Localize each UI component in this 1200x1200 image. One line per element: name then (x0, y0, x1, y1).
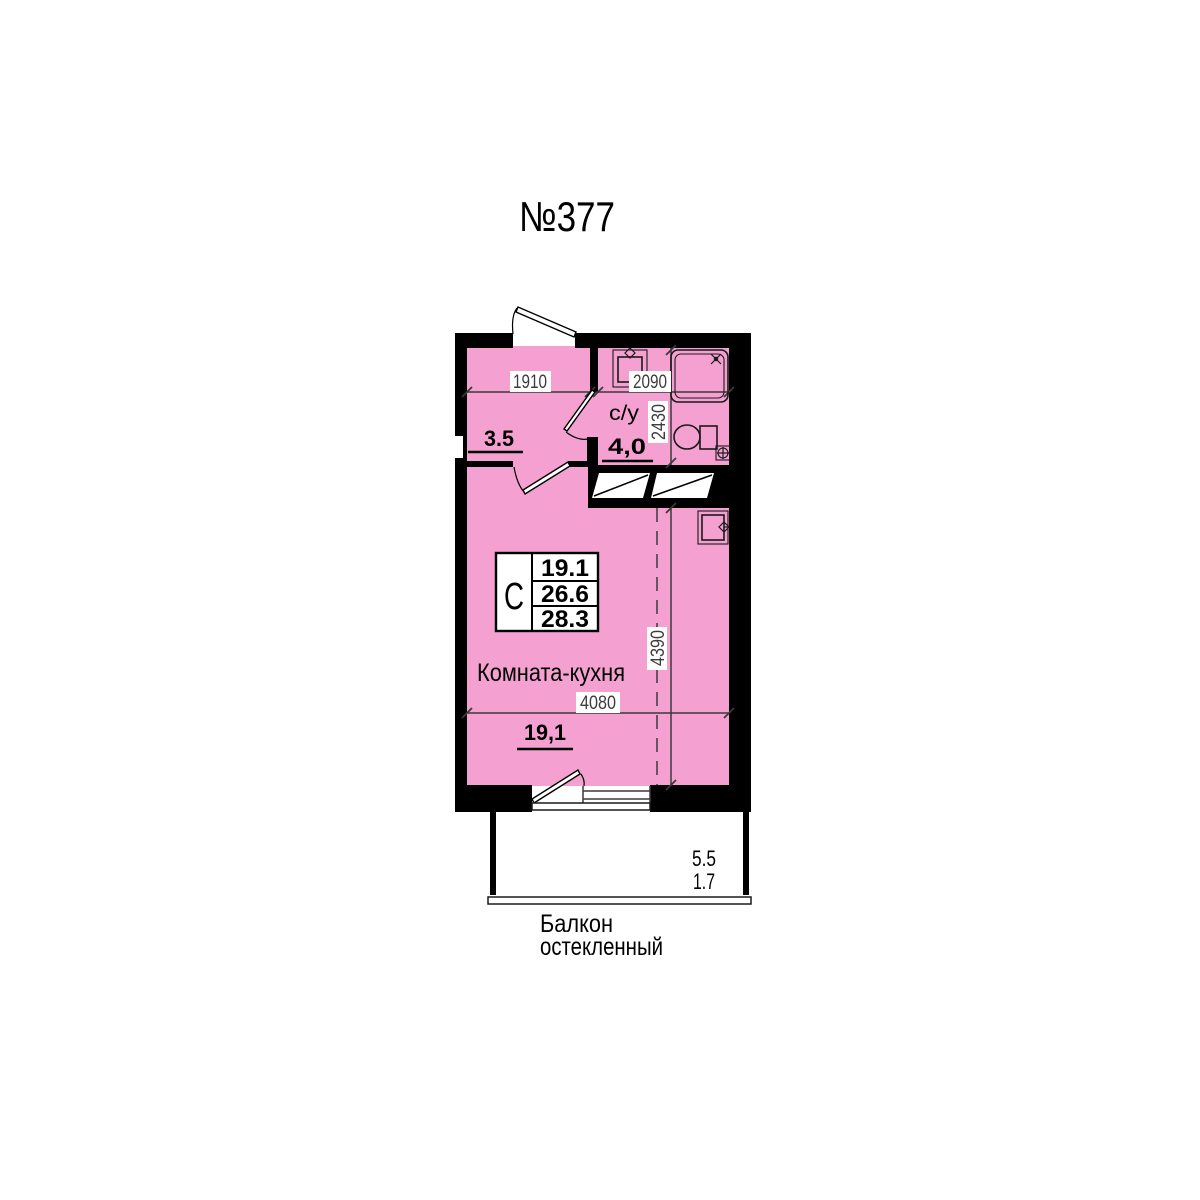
wall-right (729, 348, 751, 812)
svg-text:3.5: 3.5 (484, 426, 514, 451)
svg-text:Комната-кухня: Комната-кухня (477, 659, 625, 687)
wall-top-left (455, 333, 513, 348)
balcony-glazing (488, 897, 751, 904)
balcony-name-label: Балкон остекленный (540, 910, 663, 961)
page-title: №377 (519, 193, 615, 240)
vent-shaft-icon (651, 473, 714, 498)
entrance-door (513, 307, 577, 337)
wall-left (455, 348, 467, 812)
svg-text:19,1: 19,1 (524, 720, 566, 745)
bathroom-area-label: 4,0 (602, 434, 653, 461)
dim-label-room-width: 4080 (576, 692, 620, 714)
dim-label-hallway-width: 1910 (510, 371, 551, 393)
dim-label-room-depth: 4390 (647, 627, 669, 670)
svg-text:4080: 4080 (580, 693, 616, 714)
wall-bath-door-jamb (587, 437, 598, 467)
entrance-door-leaf (516, 307, 576, 337)
total-area-value: 28.3 (541, 606, 589, 633)
wall-hall-stub-left (467, 461, 513, 467)
living-room-area-label: 19,1 (517, 720, 573, 749)
svg-text:остекленный: остекленный (540, 933, 663, 961)
apartment-type: С (504, 576, 524, 618)
vent-shaft-icon (592, 473, 650, 498)
svg-text:4390: 4390 (648, 630, 669, 666)
wall-hall-stub-right (568, 461, 587, 467)
balcony-wall-left (490, 812, 496, 895)
svg-text:2090: 2090 (633, 372, 667, 393)
balcony-wall-right (743, 812, 749, 895)
dim-label-bathroom-depth: 2430 (648, 401, 670, 443)
svg-text:4,0: 4,0 (608, 434, 646, 459)
living-room-name-label: Комната-кухня (477, 659, 625, 687)
info-table: С 19.1 26.6 28.3 (496, 553, 598, 633)
floor-plan: №377 (0, 0, 1200, 1200)
svg-text:1910: 1910 (513, 372, 547, 393)
window-sill (532, 803, 650, 810)
wall-bath-divider (590, 348, 598, 392)
wall-bottom-left (455, 785, 532, 812)
bathroom-name-label: с/у (609, 402, 640, 425)
living-area-value: 19.1 (541, 555, 589, 582)
dim-label-bathroom-width: 2090 (629, 371, 671, 393)
area-without-balcony-value: 26.6 (541, 581, 589, 608)
svg-text:с/у: с/у (609, 402, 640, 425)
wall-bottom-right (650, 785, 751, 812)
balcony-area-full: 5.5 (692, 846, 716, 871)
balcony-area-labels: 5.5 1.7 (692, 846, 716, 894)
floor-plan-page: №377 (0, 0, 1200, 1200)
balcony-area-counted: 1.7 (693, 869, 715, 894)
wall-left-niche (455, 436, 463, 458)
wall-top-right (575, 333, 751, 348)
svg-text:2430: 2430 (649, 404, 670, 440)
